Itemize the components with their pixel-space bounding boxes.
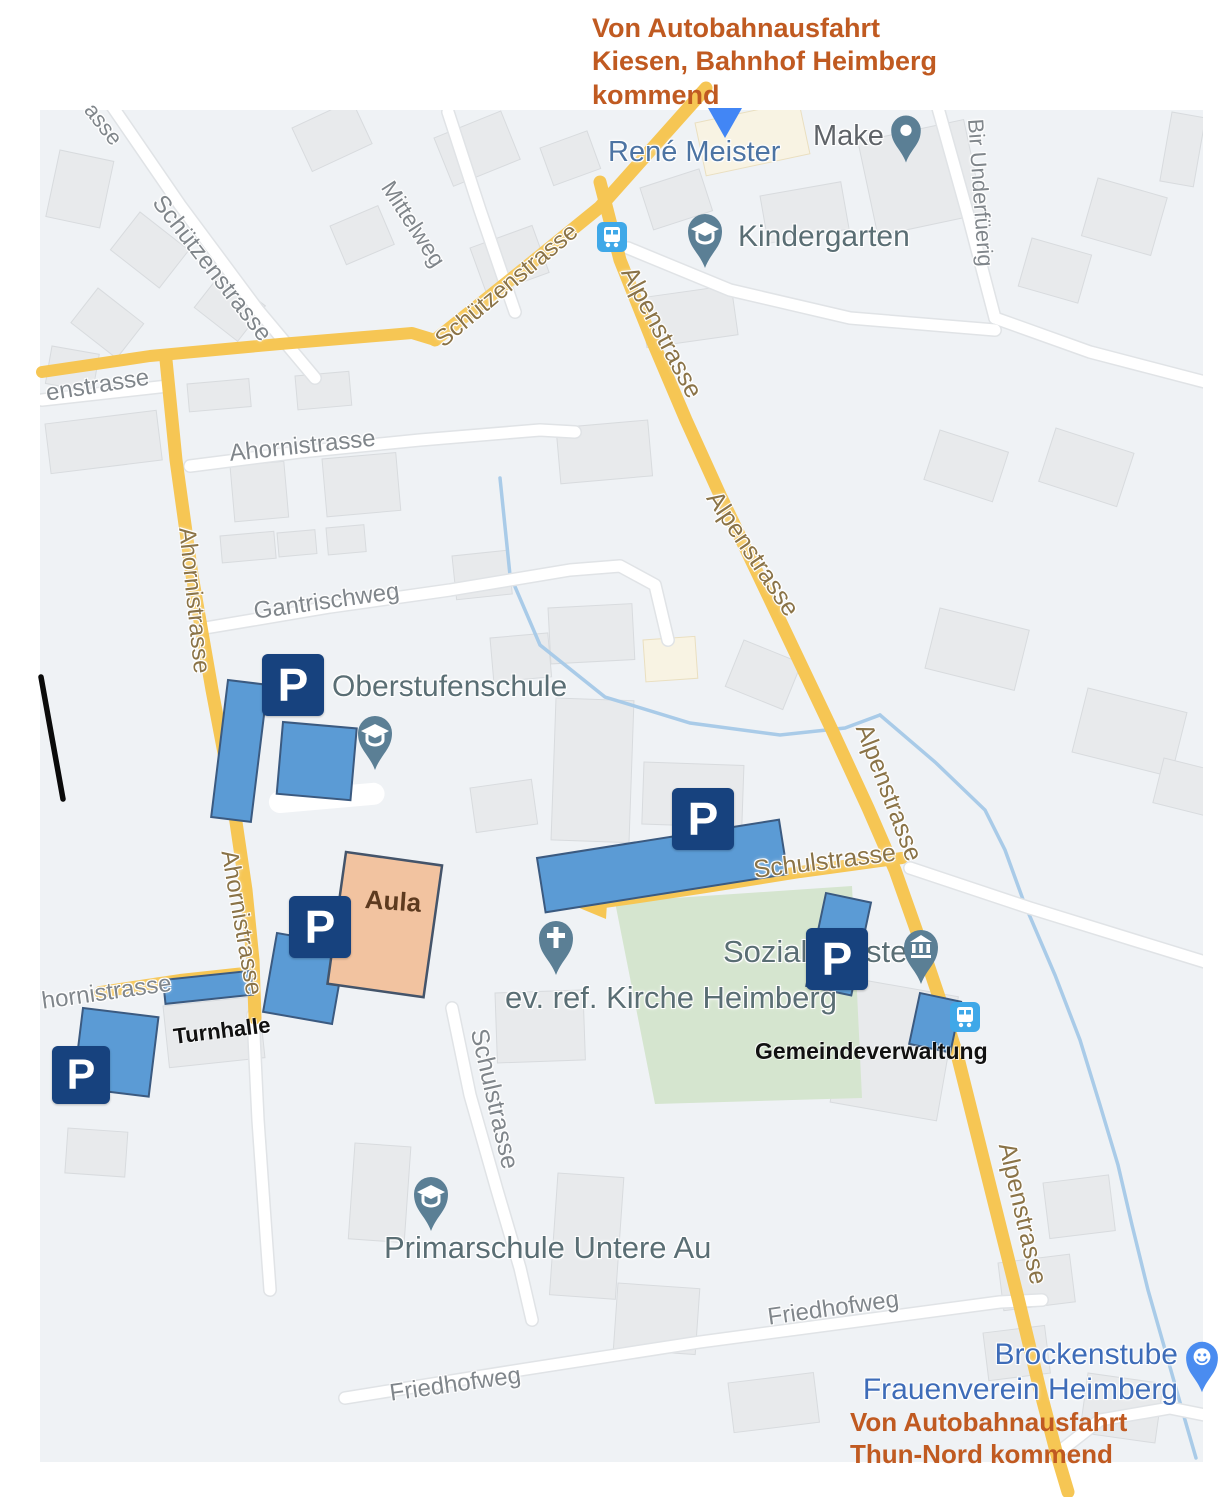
oberstufenschule-pin-icon [352, 712, 398, 779]
note-from-thun-line2: Thun-Nord kommend [850, 1438, 1127, 1470]
parking-sign-aula: P [289, 896, 351, 958]
label-kindergarten: Kindergarten [738, 220, 910, 254]
kindergarten-pin-icon [682, 210, 728, 277]
note-from-thun: Von Autobahnausfahrt Thun-Nord kommend [850, 1406, 1127, 1470]
annotated-map-page: René Meister Make Bir Underfüerig Kinder… [0, 0, 1226, 1497]
primarschule-pin-icon [408, 1172, 454, 1241]
gemeindeverwaltung-pin-icon [898, 926, 944, 993]
note-from-kiesen-line3: kommend [592, 79, 937, 112]
label-gemeindeverwaltung: Gemeindeverwaltung [755, 1038, 988, 1065]
parking-sign-oberstufenschule: P [262, 654, 324, 716]
label-brockenstube-line1: Brockenstube [860, 1338, 1178, 1373]
label-rene-meister: René Meister [608, 136, 780, 169]
label-ev-ref-kirche: ev. ref. Kirche Heimberg [505, 980, 837, 1016]
route-triangle-icon [708, 108, 742, 138]
parking-sign-schulstrasse: P [672, 788, 734, 850]
bus-stop-icon-2 [950, 1002, 980, 1037]
note-from-kiesen-line2: Kiesen, Bahnhof Heimberg [592, 45, 937, 78]
label-aula: Aula [364, 884, 422, 919]
brockenstube-pin-icon [1180, 1338, 1224, 1401]
label-brockenstube-line2: Frauenverein Heimberg [860, 1373, 1178, 1408]
note-from-kiesen: Von Autobahnausfahrt Kiesen, Bahnhof Hei… [592, 12, 937, 112]
church-pin-icon [533, 916, 579, 985]
label-make: Make [813, 120, 884, 153]
label-brockenstube: Brockenstube Frauenverein Heimberg [860, 1338, 1178, 1408]
parking-sign-gemeindeverwaltung: P [806, 928, 868, 990]
note-from-thun-line1: Von Autobahnausfahrt [850, 1406, 1127, 1438]
note-from-kiesen-line1: Von Autobahnausfahrt [592, 12, 937, 45]
label-oberstufenschule: Oberstufenschule [332, 670, 567, 704]
bus-stop-icon-1 [597, 222, 627, 257]
make-pin-icon [886, 112, 926, 171]
parking-sign-turnhalle: P [52, 1046, 110, 1104]
